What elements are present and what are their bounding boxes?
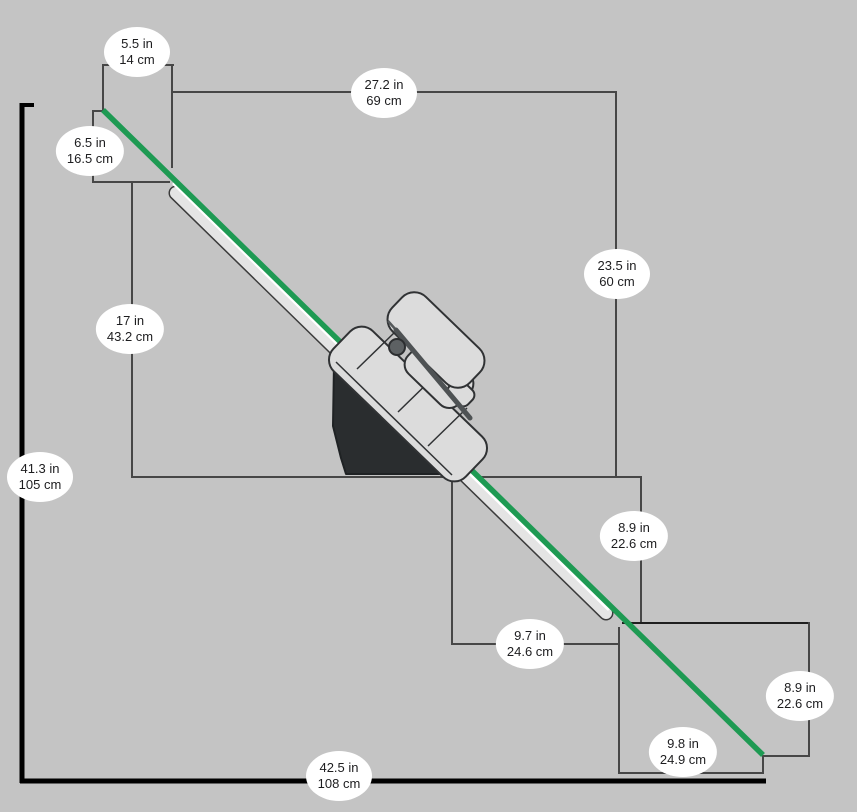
dimension-value-cm: 69 cm (366, 93, 401, 109)
dimension-value-inches: 8.9 in (784, 680, 816, 696)
dimension-value-inches: 17 in (116, 313, 144, 329)
dimension-value-inches: 5.5 in (121, 36, 153, 52)
dimension-value-cm: 14 cm (119, 52, 154, 68)
dimension-value-cm: 22.6 cm (777, 696, 823, 712)
dimension-badge-top-offset-width: 5.5 in14 cm (104, 27, 170, 77)
dimension-badge-mid-drop-height: 8.9 in22.6 cm (600, 511, 668, 561)
dimension-badge-upper-run-width: 27.2 in69 cm (351, 68, 417, 118)
dimension-badge-mid-run-width: 9.7 in24.6 cm (496, 619, 564, 669)
dimension-value-cm: 16.5 cm (67, 151, 113, 167)
diagram-canvas: 5.5 in14 cm27.2 in69 cm6.5 in16.5 cm23.5… (0, 0, 857, 812)
dimension-value-inches: 6.5 in (74, 135, 106, 151)
dimension-badge-top-offset-height: 6.5 in16.5 cm (56, 126, 124, 176)
dimension-value-cm: 43.2 cm (107, 329, 153, 345)
dimension-value-cm: 24.9 cm (660, 752, 706, 768)
dimension-value-inches: 9.7 in (514, 628, 546, 644)
dimension-value-cm: 22.6 cm (611, 536, 657, 552)
dimension-value-cm: 60 cm (599, 274, 634, 290)
dimension-badge-mid-left-height: 17 in43.2 cm (96, 304, 164, 354)
dimension-value-cm: 105 cm (19, 477, 62, 493)
dimension-badge-upper-drop-height: 23.5 in60 cm (584, 249, 650, 299)
dimension-value-cm: 108 cm (318, 776, 361, 792)
dimension-badge-overall-height: 41.3 in105 cm (7, 452, 73, 502)
dimension-value-inches: 9.8 in (667, 736, 699, 752)
machine-unit (322, 285, 493, 488)
dimension-badge-lower-drop-height: 8.9 in22.6 cm (766, 671, 834, 721)
dimension-badge-overall-width: 42.5 in108 cm (306, 751, 372, 801)
dimension-value-inches: 41.3 in (20, 461, 59, 477)
dimension-value-inches: 27.2 in (364, 77, 403, 93)
dimension-value-inches: 23.5 in (597, 258, 636, 274)
dimension-badge-lower-run-width: 9.8 in24.9 cm (649, 727, 717, 777)
machine-knob (389, 339, 405, 355)
dimension-value-cm: 24.6 cm (507, 644, 553, 660)
dimension-value-inches: 42.5 in (319, 760, 358, 776)
dimension-value-inches: 8.9 in (618, 520, 650, 536)
dimension-diagram (0, 0, 857, 812)
